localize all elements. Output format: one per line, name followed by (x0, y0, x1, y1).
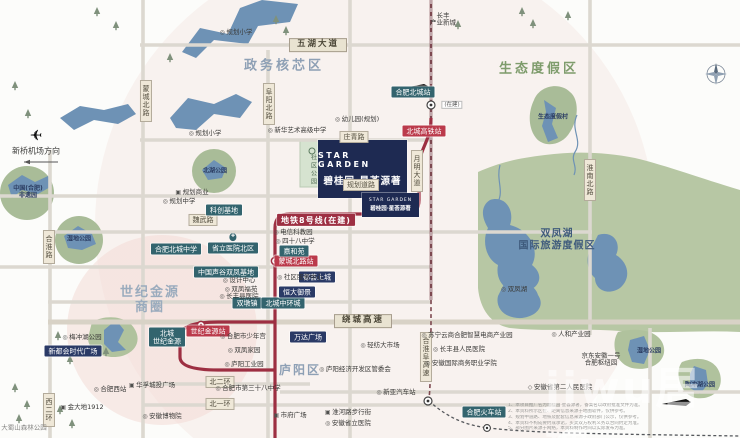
area-label-shuangfeng-lake-resort-line-0: 双凤湖 (519, 229, 596, 241)
poi-community-service-center: ◎社区服务中心 (277, 274, 323, 282)
poi-changfeng-industry-city: 长丰产业新城 (430, 13, 456, 28)
poi-hefei-youth-palace-text: 合肥市少年宫 (227, 332, 266, 340)
poi-suning-ecommerce-park: ◎苏宁云商合肥智慧电商产业园 (421, 332, 512, 340)
poi-beicheng-shijijinyuan-line-1: 世纪金源 (153, 337, 181, 345)
road-label-zhuangqing-rd-text: 庄青路 (344, 133, 365, 141)
park-label-beihu-park: 北湖公园 (195, 169, 235, 176)
poi-kindergarten-text: 幼儿园(规划) (342, 115, 380, 123)
road-label-planned-road-text: 规划道路 (347, 181, 375, 189)
poi-hengda-yujing-text: 恒大御景 (283, 288, 311, 296)
station-hefei-beicheng-rail: 合肥北城站 (392, 86, 435, 97)
poi-changfeng-people-hospital: ◎长丰县人民医院 (433, 346, 485, 354)
poi-xinya-bus-station: ◎新亚汽车站 (376, 389, 415, 397)
poi-beicheng-middle-school-text: 合肥北城中学 (155, 245, 197, 253)
metro-line8-label-text: 地铁8号线(在建) (281, 215, 351, 224)
area-label-luyang-district-text: 庐阳区 (279, 363, 321, 377)
poi-provincial-hospital-north: 省立医院北区 (208, 242, 258, 253)
road-label-hehuaifu-expressway-text: 合淮阜高速 (422, 337, 430, 377)
road-label-wuhu-avenue: 五湖大道 (289, 38, 347, 52)
poi-xinya-bus-station-text: 新亚汽车站 (383, 388, 416, 396)
poi-telecom-science-park-text: 电信科教园 (280, 228, 313, 236)
road-label-west-2nd-ring-text: 西二环 (45, 398, 53, 422)
map-canvas: STAR GARDEN 碧桂园·星荟源著 STAR GARDEN 碧桂园·星荟源… (0, 0, 740, 438)
airport-direction-label: 新桥机场方向 (12, 146, 60, 155)
watermark: jiwu居理 (545, 352, 740, 438)
poi-kechuang-base: 科创基地 (206, 204, 242, 215)
poi-planned-primary-school-2-text: 规划小学 (195, 129, 221, 137)
circle-poi-icon: ◎ (273, 229, 278, 236)
station-hefei-railway: 合肥火车站 (463, 406, 506, 417)
metro-line8-label: 地铁8号线(在建) (277, 214, 355, 226)
park-label-intangible-heritage-park: 中国(合肥)非遗园 (5, 186, 51, 200)
road-label-west-2nd-ring: 西二环 (43, 393, 55, 427)
road-label-hehuai-rd: 合淮路 (43, 230, 55, 264)
park-label-eco-resort-village-text: 生态度假村 (538, 114, 568, 121)
poi-textile-market: ◎轻纺大市场 (360, 342, 399, 350)
poi-provincial-hospital-text: 安徽省立医院 (332, 419, 371, 427)
poi-shuangfeng-lake: ◎双凤湖 (501, 286, 527, 294)
circle-poi-icon: ◎ (551, 331, 556, 338)
circle-poi-icon: ◎ (220, 333, 225, 340)
poi-changfeng-county-hospital: ◎长丰县医院 (219, 293, 258, 301)
circle-poi-icon: ◎ (421, 332, 426, 339)
building-icon: ▣ (325, 409, 331, 416)
road-label-fuyang-north-rd-text: 阜阳北路 (265, 88, 273, 120)
station-hefei-railway-text: 合肥火车站 (467, 408, 502, 416)
station-beicheng-hsr: 北城高铁站 (403, 125, 446, 136)
circle-poi-icon: ◎ (360, 342, 365, 349)
poi-no38-middle-school: ◎合肥市第三十八中学 (215, 385, 280, 393)
poi-meichong-lake-park-text: 梅冲湖公园 (69, 333, 102, 341)
poi-huaihe-rd-walking-street: ▣淮河路步行街 (325, 409, 371, 417)
park-label-wetland-park-west: 湿地公园 (59, 237, 99, 244)
circle-poi-icon: ◎ (501, 286, 506, 293)
poi-renhe-industrial-park: ◎人和产业园 (551, 331, 590, 339)
hospital-cross-icon-text: ✚ (231, 233, 235, 239)
road-label-mengcheng-north-rd: 蒙城北路 (140, 80, 152, 122)
poi-planned-commerce: ▣规划商业 (175, 189, 208, 197)
poi-planned-commerce-text: 规划商业 (183, 188, 209, 196)
poi-beicheng-zhonghuan-city: 北城中环城 (262, 297, 305, 308)
plane-icon-text: ✈ (30, 126, 43, 144)
poi-no38-middle-school-text: 合肥市第三十八中学 (222, 384, 281, 392)
under-construction-tag-text: (在建) (444, 102, 459, 108)
area-label-shijijinyuan-cbd-line-0: 世纪金源 (120, 286, 180, 301)
poi-china-sound-valley-text: 中国声谷双凤基地 (198, 268, 254, 276)
poi-jindadi-1912-text: 金大地1912 (68, 403, 104, 411)
road-label-planned-road: 规划道路 (343, 179, 379, 191)
circle-poi-icon: ◎ (223, 277, 228, 284)
poi-jiaheyuan-text: 嘉和苑 (284, 247, 305, 255)
circle-poi-icon: ◎ (433, 346, 438, 353)
poi-wanda-plaza-text: 万达广场 (294, 333, 322, 341)
circle-poi-icon: ◎ (275, 238, 280, 245)
poi-beicheng-zhonghuan-city-text: 北城中环城 (266, 299, 301, 307)
poi-provincial-hospital: ◎安徽省立医院 (325, 420, 371, 428)
road-label-yueming-avenue: 月明大道 (411, 150, 423, 192)
circle-poi-icon: ◎ (215, 385, 220, 392)
poi-luyang-industrial-park-text: 庐阳工业园 (231, 360, 264, 368)
station-hefei-beicheng-rail-text: 合肥北城站 (396, 88, 431, 96)
road-label-raocheng-expressway-text: 绕城高速 (342, 315, 384, 325)
poi-hengda-yujing: 恒大御景 (279, 286, 315, 297)
poi-textile-market-text: 轻纺大市场 (367, 341, 400, 349)
road-label-huainan-north-rd-text: 淮南北路 (586, 164, 594, 196)
park-label-intangible-heritage-park-line-1: 非遗园 (5, 193, 51, 200)
station-beicheng-hsr-text: 北城高铁站 (407, 127, 442, 135)
poi-shuangfeng-jiayuan: ◎双凤家园 (228, 347, 261, 355)
area-label-luyang-district: 庐阳区 (279, 364, 321, 378)
poi-anhui-business-college: ◎安徽国际商务职业学院 (425, 360, 497, 368)
building-icon: ▣ (175, 189, 181, 196)
poi-design-center-text: 设计中心 (229, 276, 255, 284)
circle-poi-icon: ◎ (219, 293, 224, 300)
poi-jindadi-1912: ▣金大地1912 (60, 404, 103, 412)
circle-poi-icon: ◎ (268, 127, 273, 134)
diamond-poi-icon: ◇ (528, 384, 533, 391)
building-icon: ▣ (129, 382, 135, 389)
circle-poi-icon: ◎ (425, 360, 430, 367)
poi-planned-middle-school-text: 规划中学 (169, 197, 195, 205)
station-mengchengbeilu: 蒙城北路站 (275, 255, 318, 266)
poi-luyang-devzone-committee-text: 庐阳经济开发区管委会 (326, 365, 391, 373)
poi-luyang-industrial-park: ◎庐阳工业园 (224, 361, 263, 369)
road-label-hehuai-rd-text: 合淮路 (45, 235, 53, 259)
road-label-north-1st-ring: 北一环 (206, 398, 235, 410)
under-construction-tag: (在建) (441, 101, 462, 109)
poi-planned-middle-school: ◎规划中学 (163, 198, 196, 206)
road-label-mengcheng-north-rd-text: 蒙城北路 (142, 85, 150, 117)
poi-luyang-devzone-committee: ◎庐阳经济开发区管委会 (319, 366, 391, 374)
road-label-fuyang-north-rd: 阜阳北路 (263, 83, 275, 125)
area-label-shijijinyuan-cbd-line-1: 商圈 (120, 301, 180, 316)
park-label-beihu-park-text: 北湖公园 (203, 168, 227, 175)
park-label-eco-resort-village: 生态度假村 (533, 115, 573, 122)
poi-huafu-chengtou-plaza: ▣华孚城投广场 (129, 382, 175, 390)
poi-beicheng-middle-school: 合肥北城中学 (151, 243, 201, 254)
poi-suning-ecommerce-park-text: 苏宁云商合肥智慧电商产业园 (428, 331, 513, 339)
poi-meichong-lake-park: ◎梅冲湖公园 (62, 334, 101, 342)
road-label-huainan-north-rd: 淮南北路 (584, 159, 596, 201)
building-icon: ▣ (60, 404, 66, 411)
circle-poi-icon: ◎ (376, 389, 381, 396)
poi-xinduhui-times-plaza: 新都会时代广场 (45, 345, 102, 356)
poi-shuangfeng-jiayuan-text: 双凤家园 (234, 346, 260, 354)
poi-design-center: ◎设计中心 (223, 277, 256, 285)
poi-beicheng-shijijinyuan: 北城世纪金源 (149, 327, 185, 346)
area-label-government-core-text: 政务核芯区 (244, 59, 324, 74)
poi-shuangfeng-lake-text: 双凤湖 (508, 285, 528, 293)
road-label-zhuangqing-rd: 庄青路 (340, 131, 369, 143)
area-label-shijijinyuan-cbd: 世纪金源商圈 (120, 286, 180, 316)
poi-xinduhui-times-plaza-text: 新都会时代广场 (49, 347, 98, 355)
circle-poi-icon: ◎ (142, 413, 147, 420)
circle-poi-icon: ◎ (189, 130, 194, 137)
airport-direction-label-text: 新桥机场方向 (12, 146, 60, 155)
station-mengchengbeilu-text: 蒙城北路站 (279, 257, 314, 265)
circle-poi-icon: ◎ (220, 29, 225, 36)
area-label-eco-resort: 生态度假区 (499, 63, 579, 78)
park-label-wetland-park-west-text: 湿地公园 (67, 236, 91, 243)
poi-kindergarten: ◎幼儿园(规划) (335, 116, 379, 124)
road-label-north-1st-ring-text: 北一环 (210, 400, 231, 408)
poi-kechuang-base-text: 科创基地 (210, 206, 238, 214)
area-label-government-core: 政务核芯区 (244, 60, 324, 75)
area-label-shuangfeng-lake-resort: 双凤湖国际旅游度假区 (519, 229, 596, 252)
circle-poi-icon: ◎ (224, 361, 229, 368)
area-label-shuangfeng-lake-resort-line-1: 国际旅游度假区 (519, 240, 596, 252)
poi-hefei-west-station-text: 合肥西站 (100, 385, 126, 393)
poi-planned-primary-school-1: ◎规划小学 (220, 29, 253, 37)
poi-renhe-industrial-park-text: 人和产业园 (558, 330, 591, 338)
circle-poi-icon: ◎ (325, 420, 330, 427)
poi-dashushan-forest-park: 大蜀山森林公园 (1, 424, 47, 431)
poi-no48-middle-school-text: 四十八中学 (282, 237, 315, 245)
road-label-weiwu-rd: 魏武路 (189, 214, 218, 226)
circle-poi-icon: ◎ (62, 334, 67, 341)
poi-jiaheyuan: 嘉和苑 (280, 245, 309, 256)
park-label-community-park-text: 社区公园 (309, 154, 316, 186)
poi-shifu-plaza-text: 市府广场 (281, 411, 307, 419)
poi-changfeng-industry-city-line-1: 产业新城 (430, 20, 456, 27)
poi-beicheng-shijijinyuan-line-0: 北城 (153, 329, 181, 337)
road-label-yueming-avenue-text: 月明大道 (413, 155, 421, 187)
poi-community-service-center-text: 社区服务中心 (284, 273, 323, 281)
poi-huafu-chengtou-plaza-text: 华孚城投广场 (136, 381, 175, 389)
circle-poi-icon: ◎ (277, 274, 282, 281)
plane-icon: ✈ (30, 127, 43, 144)
poi-telecom-science-park: ◎电信科教园 (273, 229, 312, 237)
circle-poi-icon: ◎ (319, 366, 324, 373)
poi-wanda-plaza: 万达广场 (290, 331, 326, 342)
road-label-wuhu-avenue-text: 五湖大道 (297, 39, 339, 49)
road-label-raocheng-expressway: 绕城高速 (334, 314, 392, 328)
poi-huaihe-rd-walking-street-text: 淮河路步行街 (332, 408, 371, 416)
area-label-eco-resort-text: 生态度假区 (499, 62, 579, 77)
poi-anhui-museum: ◎安徽博物院 (142, 413, 181, 421)
poi-xinhua-art-high-school-text: 新华艺术高级中学 (274, 126, 326, 134)
poi-changfeng-people-hospital-text: 长丰县人民医院 (440, 345, 486, 353)
road-label-weiwu-rd-text: 魏武路 (193, 216, 214, 224)
circle-poi-icon: ◎ (335, 116, 340, 123)
poi-hefei-youth-palace: ◎合肥市少年宫 (220, 333, 266, 341)
poi-anhui-museum-text: 安徽博物院 (149, 412, 182, 420)
poi-provincial-hospital-north-text: 省立医院北区 (212, 244, 254, 252)
poi-planned-primary-school-1-text: 规划小学 (226, 28, 252, 36)
poi-anhui-business-college-text: 安徽国际商务职业学院 (432, 359, 497, 367)
poi-hefei-west-station: ◎合肥西站 (94, 386, 127, 394)
poi-changfeng-county-hospital-text: 长丰县医院 (226, 292, 259, 300)
poi-shifu-plaza: ▣市府广场 (273, 412, 306, 420)
poi-xinhua-art-high-school: ◎新华艺术高级中学 (268, 127, 327, 135)
poi-planned-primary-school-2: ◎规划小学 (189, 130, 222, 138)
building-icon: ▣ (273, 412, 279, 419)
park-label-community-park: 社区公园 (309, 154, 316, 186)
circle-poi-icon: ◎ (94, 386, 99, 393)
hospital-cross-icon: ✚ (229, 233, 236, 241)
circle-poi-icon: ◎ (163, 198, 168, 205)
circle-poi-icon: ◎ (228, 347, 233, 354)
poi-dashushan-forest-park-text: 大蜀山森林公园 (1, 423, 47, 431)
poi-no48-middle-school: ◎四十八中学 (275, 238, 314, 246)
